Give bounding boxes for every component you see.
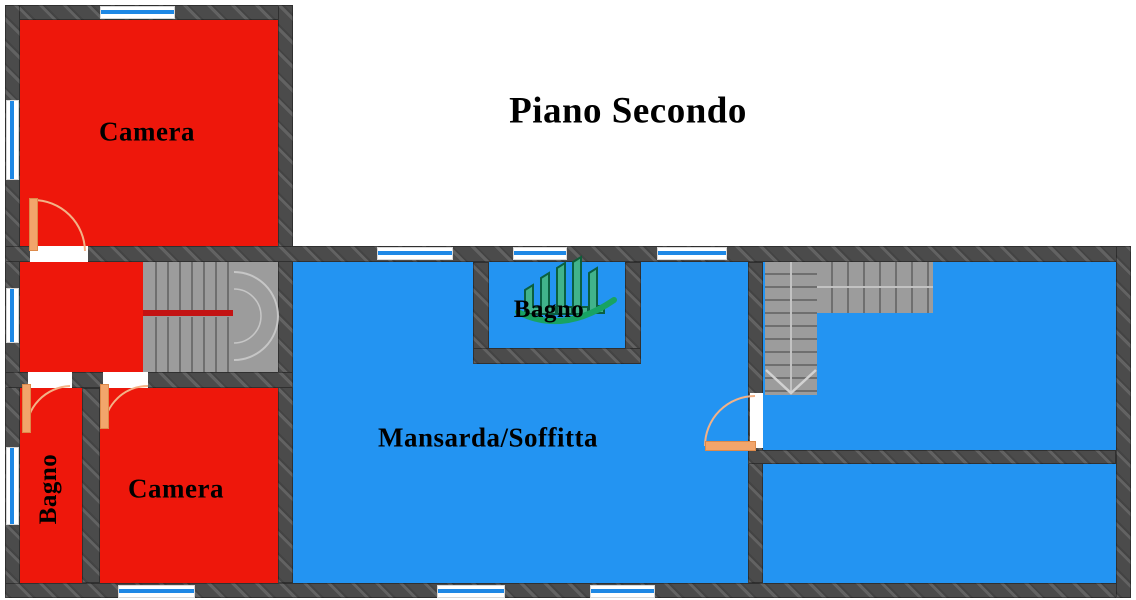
staircase-left-handrail bbox=[143, 310, 233, 316]
wall-right-exterior bbox=[1116, 246, 1131, 598]
wall-right-rooms-divider bbox=[748, 450, 1116, 464]
doorway-mansarda-right bbox=[750, 393, 763, 448]
window-top-camera bbox=[100, 6, 175, 19]
room-hallway bbox=[20, 262, 143, 372]
wall-bagno-camera-divider bbox=[82, 388, 100, 583]
staircase-right-stringer bbox=[790, 262, 792, 393]
staircase-left-upper-flight bbox=[145, 262, 237, 311]
label-bagno-middle: Bagno bbox=[514, 296, 585, 324]
window-bottom-camera bbox=[118, 585, 195, 598]
door-leaf-camera-bottom bbox=[100, 384, 109, 429]
window-left-hallway bbox=[6, 288, 19, 343]
window-left-camera-top bbox=[6, 100, 19, 180]
door-leaf-camera-top bbox=[29, 198, 38, 251]
wall-bagno-middle-bottom bbox=[473, 348, 641, 364]
doorway-bagno-left bbox=[28, 372, 72, 388]
window-band-top-3 bbox=[657, 247, 727, 260]
wall-left-wing-right bbox=[278, 5, 293, 583]
doorway-camera-bottom bbox=[103, 372, 148, 388]
staircase-right-mid-line bbox=[817, 286, 933, 288]
floor-plan-canvas: Piano Secondo Camera Bagno Mansarda/Soff… bbox=[0, 0, 1136, 600]
door-leaf-bagno-left bbox=[22, 384, 31, 433]
label-mansarda: Mansarda/Soffitta bbox=[378, 423, 598, 454]
window-band-top-2 bbox=[513, 247, 567, 260]
page-title: Piano Secondo bbox=[509, 90, 747, 133]
door-leaf-mansarda-right bbox=[705, 441, 756, 451]
doorway-camera-top bbox=[30, 246, 88, 262]
window-left-bagno bbox=[6, 447, 19, 525]
label-bagno-left: Bagno bbox=[35, 454, 63, 525]
window-bottom-mansarda-2 bbox=[590, 585, 655, 598]
label-camera-top: Camera bbox=[99, 117, 195, 148]
label-camera-bottom: Camera bbox=[128, 474, 224, 505]
window-bottom-mansarda-1 bbox=[437, 585, 505, 598]
wall-band-top bbox=[5, 246, 1131, 262]
window-band-top-1 bbox=[377, 247, 453, 260]
staircase-left-lower-flight bbox=[145, 317, 237, 372]
